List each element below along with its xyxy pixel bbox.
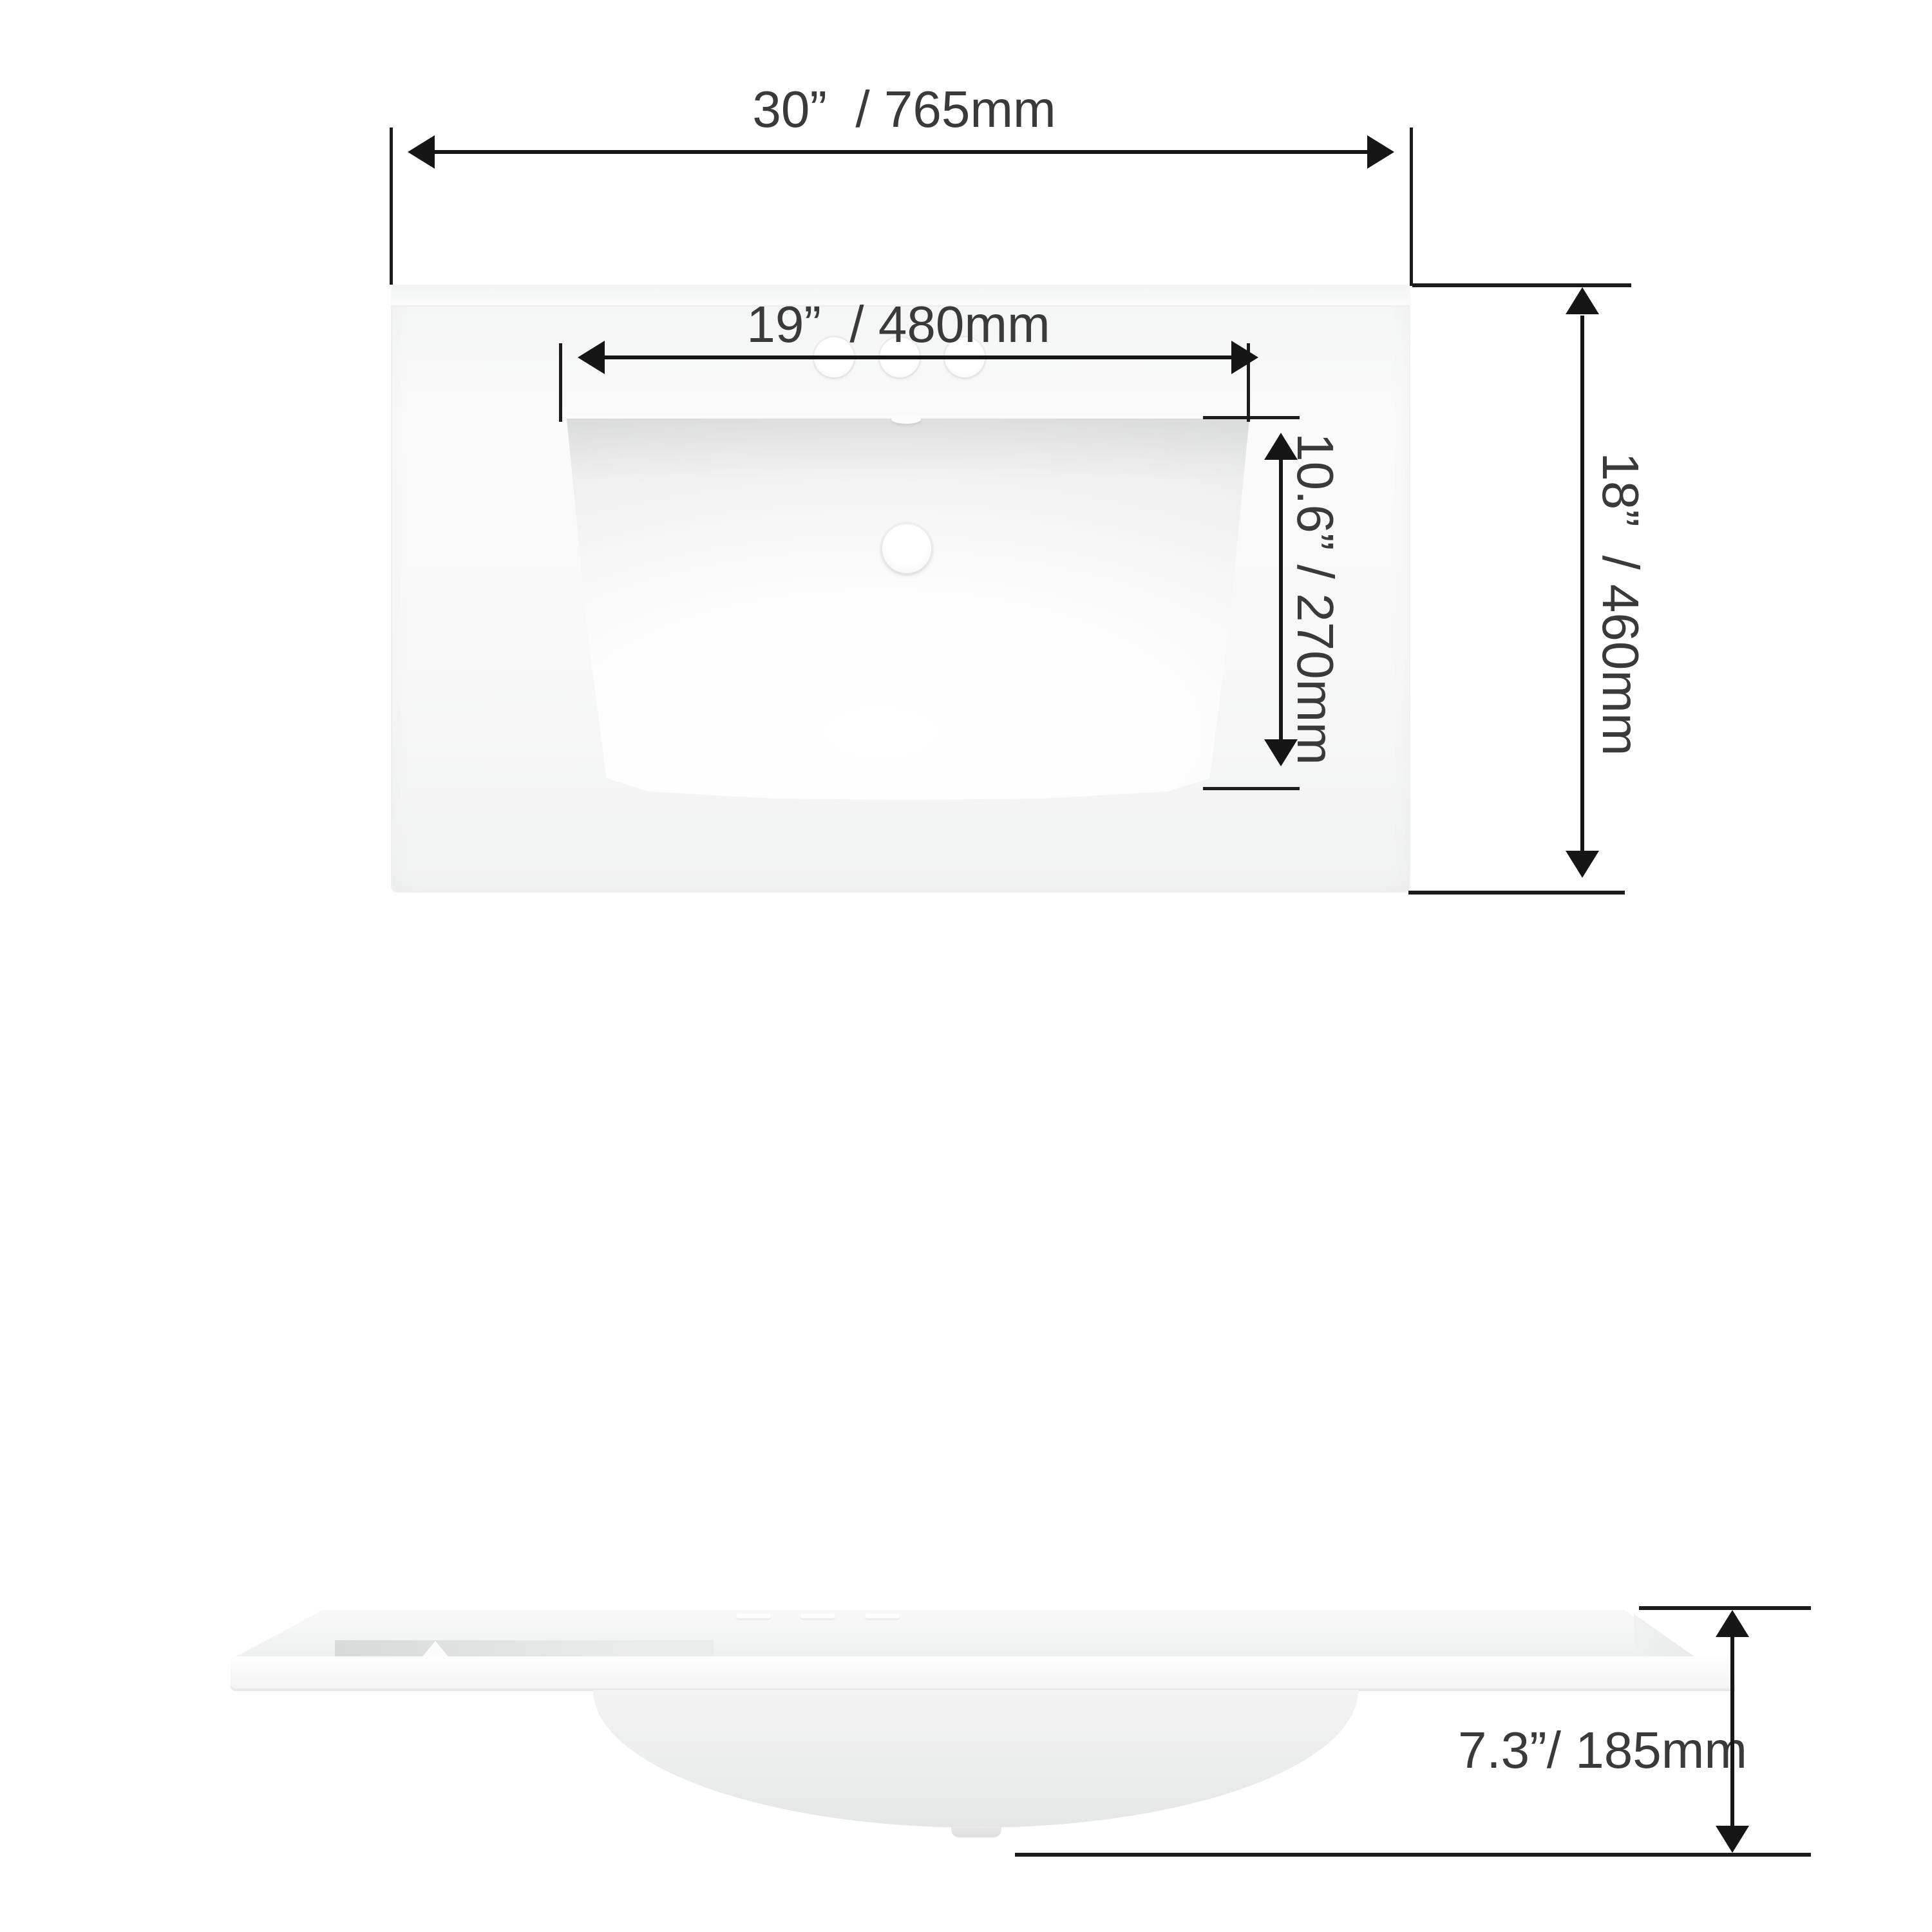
dim-overall-height-label: 7.3”/ 185mm	[1361, 1723, 1747, 1777]
extension-line	[559, 343, 562, 422]
extension-line	[1408, 891, 1625, 895]
arrowhead-right-icon	[1231, 341, 1258, 374]
dimension-line	[1580, 316, 1584, 853]
arrowhead-left-icon	[578, 341, 605, 374]
arrowhead-right-icon	[1367, 135, 1394, 169]
arrowhead-left-icon	[408, 135, 435, 169]
dim-basin-depth-label: 10.6” / 270mm	[1288, 419, 1342, 779]
drain-hole	[882, 524, 931, 573]
extension-line	[390, 128, 393, 285]
faucet-hole-mark	[800, 1614, 835, 1618]
dim-basin-width-label: 19” / 480mm	[576, 298, 1220, 352]
dimension-line	[433, 150, 1368, 154]
dimension-line	[602, 355, 1233, 359]
diagram-canvas: 30” / 765mm 19” / 480mm 10.6” / 270mm	[0, 0, 1932, 1932]
extension-line	[1203, 787, 1300, 790]
arrowhead-down-icon	[1716, 1826, 1749, 1853]
extension-line	[1015, 1853, 1811, 1857]
under-bowl-profile	[593, 1690, 1358, 1828]
dimension-line	[1730, 1633, 1734, 1833]
dimension-line	[1279, 456, 1283, 743]
drain-stub	[951, 1826, 1001, 1837]
arrowhead-down-icon	[1264, 739, 1298, 766]
sink-basin	[567, 419, 1249, 801]
countertop-top-view	[391, 285, 1410, 893]
overflow-notch	[891, 415, 921, 424]
arrowhead-up-icon	[1264, 433, 1298, 460]
countertop-profile	[231, 1656, 1735, 1691]
extension-line	[1410, 128, 1413, 286]
arrowhead-up-icon	[1716, 1610, 1749, 1637]
extension-line	[1203, 416, 1300, 419]
faucet-hole-mark	[736, 1614, 771, 1618]
arrowhead-down-icon	[1566, 851, 1599, 878]
dim-overall-width-label: 30” / 765mm	[582, 82, 1226, 137]
arrowhead-up-icon	[1566, 287, 1599, 314]
faucet-hole-mark	[865, 1614, 900, 1618]
dim-overall-depth-label: 18” / 460mm	[1593, 379, 1647, 829]
